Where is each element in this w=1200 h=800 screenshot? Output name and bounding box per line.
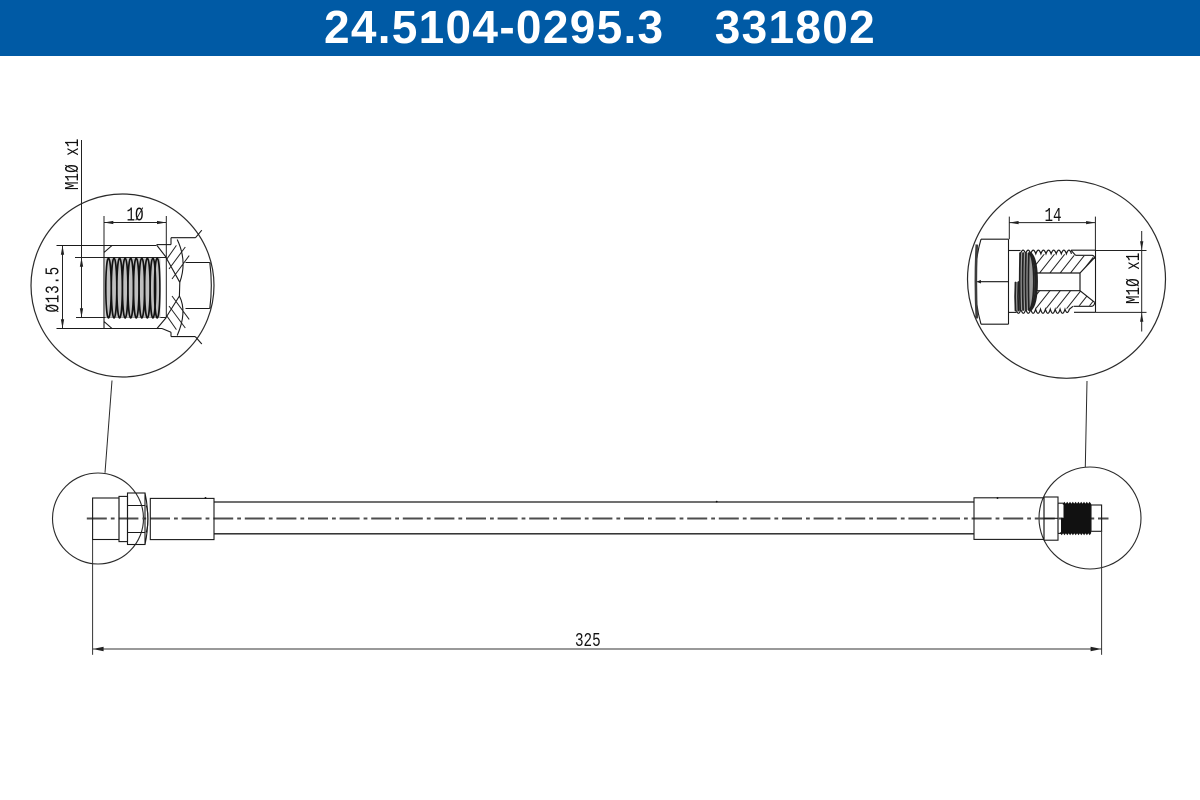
svg-text:14: 14 [1045,206,1062,227]
svg-text:24.5104-0295.3 331802: 24.5104-0295.3 331802 [324,1,876,53]
svg-text:M1Ø x1: M1Ø x1 [1124,253,1145,304]
svg-text:Ø13.5: Ø13.5 [44,266,65,312]
svg-text:1Ø: 1Ø [127,206,144,227]
svg-text:325: 325 [575,631,601,652]
